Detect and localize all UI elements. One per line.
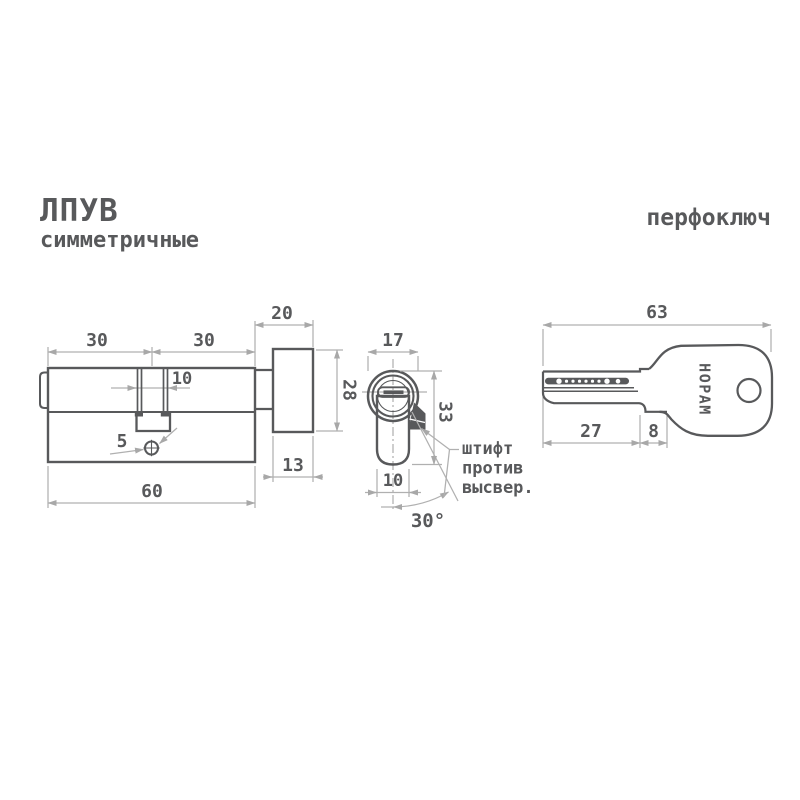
dim-total-length: 60 xyxy=(141,481,163,502)
dim-knob-thickness: 13 xyxy=(282,455,304,476)
technical-drawing: 30 30 20 10 28 5 13 60 xyxy=(0,0,800,800)
cam-slot-lines xyxy=(135,369,169,417)
key-ring-hole xyxy=(738,379,761,402)
dim-barrel-diameter: 17 xyxy=(382,330,404,351)
pin-angle-arc xyxy=(394,492,449,507)
dim-blade-length: 27 xyxy=(580,421,602,442)
cylinder-section-view: 17 33 10 30° штифт против высвер. xyxy=(362,330,534,532)
section-extension-lines xyxy=(368,356,442,497)
dim-left-half: 30 xyxy=(86,330,108,351)
cylinder-front-view: 30 30 20 10 28 5 13 60 xyxy=(40,303,360,508)
thumb-turn-knob xyxy=(273,349,313,432)
anti-drill-note-line2: против xyxy=(462,459,523,479)
keyway-bar xyxy=(384,390,404,394)
dim-key-length: 63 xyxy=(646,302,668,323)
dim-profile-width: 10 xyxy=(383,471,403,491)
dim-cam-slot-width: 10 xyxy=(172,369,192,389)
anti-drill-note-line3: высвер. xyxy=(462,478,534,498)
drawing-sheet: ЛПУВ симметричные перфоключ xyxy=(0,0,800,800)
dim-knob-diameter: 28 xyxy=(339,379,360,401)
anti-drill-note-line1: штифт xyxy=(462,439,513,459)
dim-screw-hole: 5 xyxy=(117,431,128,452)
dim-shoulder: 8 xyxy=(648,421,659,442)
blade-perforations xyxy=(545,378,629,385)
dim-right-half: 30 xyxy=(193,330,215,351)
pin-angle-line xyxy=(412,412,458,501)
dim-profile-height: 33 xyxy=(435,401,456,423)
note-leader-lines xyxy=(444,450,459,498)
key-brand-engraving: НОРАМ xyxy=(696,363,714,416)
dim-knob-depth: 20 xyxy=(271,303,293,324)
fixing-screw-hole xyxy=(143,440,159,456)
dim-pin-angle: 30° xyxy=(411,510,445,532)
key-view: НОРАМ 63 27 8 xyxy=(543,302,772,448)
